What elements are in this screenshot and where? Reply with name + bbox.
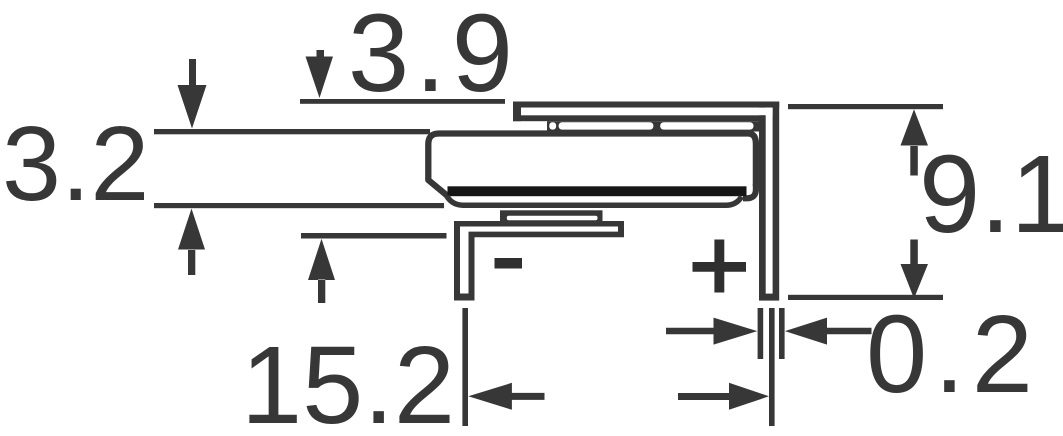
svg-text:3.2: 3.2 — [2, 105, 149, 223]
svg-text:3.9: 3.9 — [348, 0, 519, 115]
svg-text:9.1: 9.1 — [919, 133, 1063, 256]
svg-text:0.2: 0.2 — [866, 293, 1040, 416]
svg-text:15.2: 15.2 — [241, 324, 455, 436]
